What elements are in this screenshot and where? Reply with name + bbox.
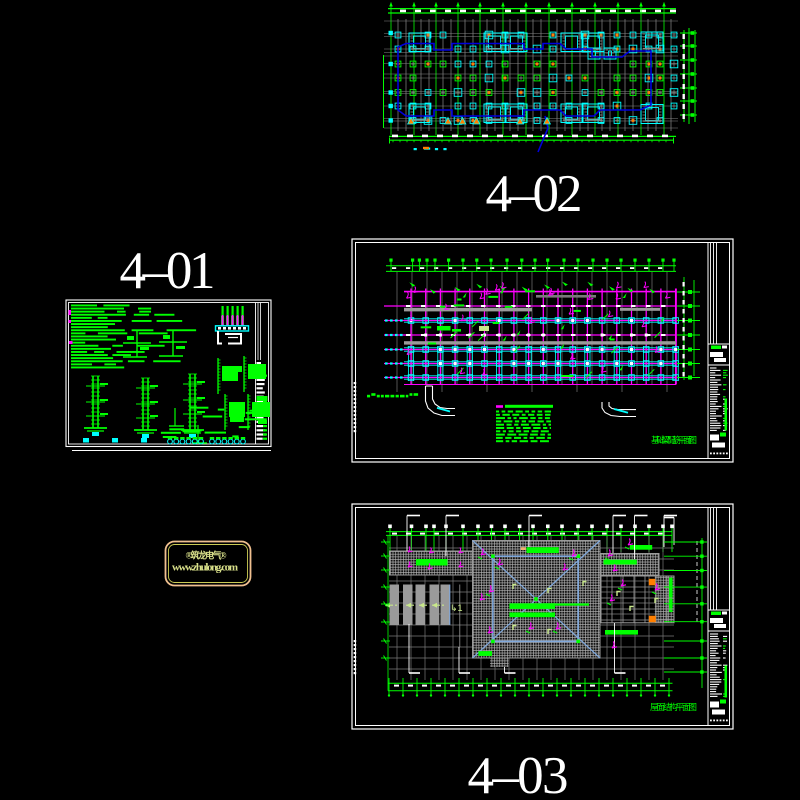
svg-text:基础梁配筋平面图: 基础梁配筋平面图 [651,434,697,445]
svg-text:®筑龙电气®: ®筑龙电气® [186,550,227,561]
svg-text:屋面结构平面图: 屋面结构平面图 [650,701,697,712]
svg-text:4–02: 4–02 [486,165,583,223]
svg-text:↳1: ↳1 [450,603,463,613]
svg-text:4–01: 4–01 [120,242,216,300]
svg-text:4–03: 4–03 [468,747,569,800]
svg-text:www.zhulong.com: www.zhulong.com [172,562,238,574]
